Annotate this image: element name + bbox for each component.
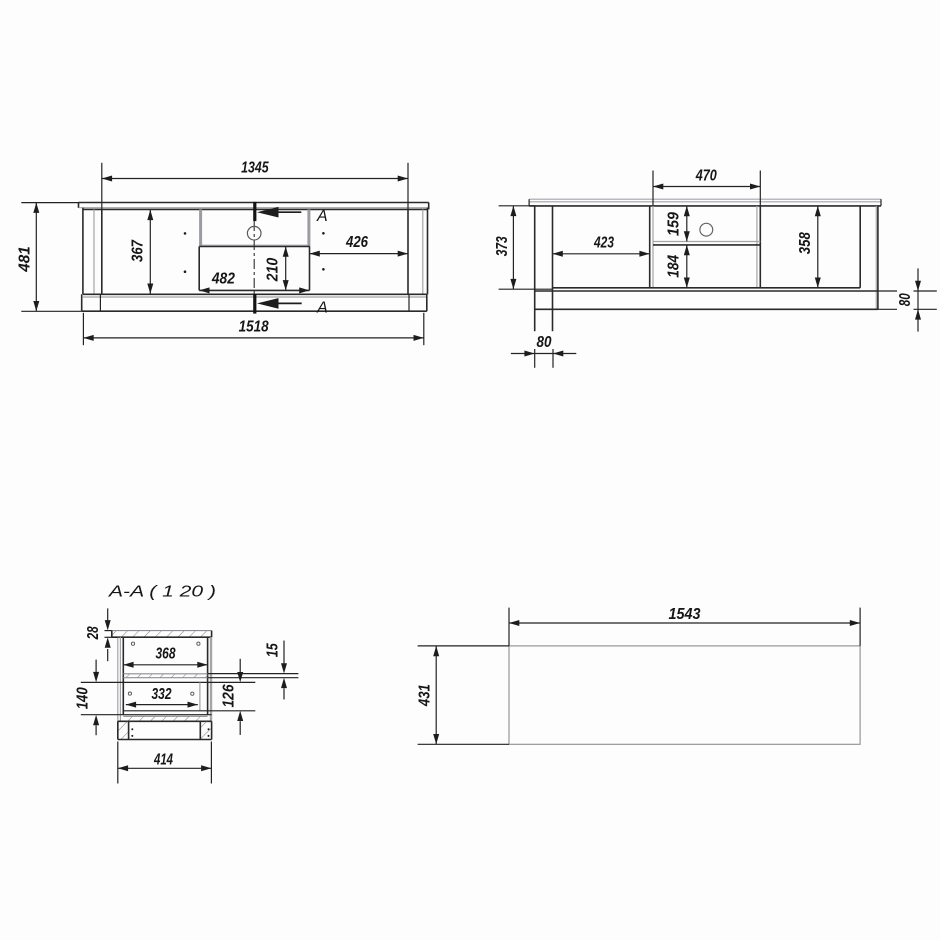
svg-text:332: 332 bbox=[152, 686, 172, 703]
svg-text:431: 431 bbox=[417, 684, 434, 707]
svg-text:1543: 1543 bbox=[669, 606, 701, 623]
svg-text:481: 481 bbox=[17, 246, 34, 273]
svg-text:126: 126 bbox=[221, 684, 238, 707]
svg-text:358: 358 bbox=[797, 232, 814, 254]
svg-text:28: 28 bbox=[85, 626, 102, 640]
svg-text:470: 470 bbox=[695, 168, 717, 185]
svg-text:423: 423 bbox=[593, 234, 614, 251]
svg-text:A: A bbox=[316, 299, 328, 316]
svg-text:184: 184 bbox=[666, 255, 683, 278]
svg-text:368: 368 bbox=[156, 646, 176, 663]
svg-text:367: 367 bbox=[130, 239, 147, 262]
svg-text:373: 373 bbox=[494, 236, 511, 256]
svg-text:414: 414 bbox=[153, 751, 173, 768]
svg-text:A-A ( 1 20 ): A-A ( 1 20 ) bbox=[108, 584, 216, 601]
svg-text:482: 482 bbox=[211, 271, 235, 288]
svg-text:426: 426 bbox=[345, 234, 368, 251]
svg-text:1518: 1518 bbox=[239, 319, 269, 336]
svg-text:A: A bbox=[316, 208, 328, 225]
svg-text:80: 80 bbox=[537, 334, 552, 351]
svg-text:80: 80 bbox=[897, 293, 914, 306]
svg-text:1345: 1345 bbox=[241, 160, 269, 177]
svg-text:159: 159 bbox=[666, 212, 683, 236]
svg-text:210: 210 bbox=[264, 258, 281, 282]
svg-text:140: 140 bbox=[75, 687, 92, 709]
svg-text:15: 15 bbox=[264, 642, 281, 657]
